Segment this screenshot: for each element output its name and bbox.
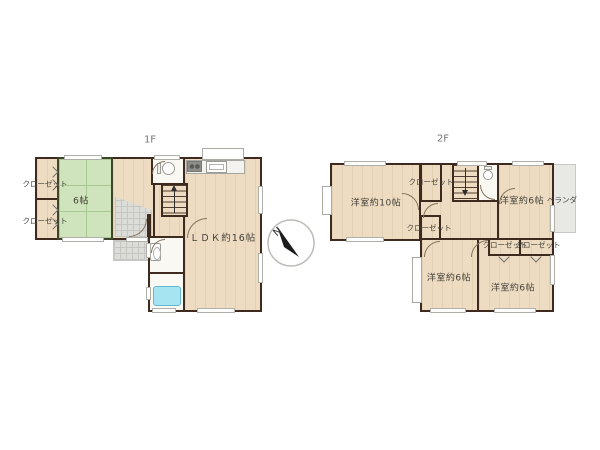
compass-icon: N: [264, 216, 318, 270]
stairs-up-arrowhead: [171, 185, 177, 191]
stairs-down-arrowhead: [462, 190, 468, 196]
window: [344, 161, 386, 166]
closet-label: クローゼット: [23, 179, 68, 190]
bedroom-6-sw-label: 洋室約6帖: [427, 271, 471, 284]
window: [512, 161, 544, 166]
window: [197, 308, 235, 313]
window: [154, 155, 180, 160]
bedroom-10-label: 洋室約10帖: [351, 196, 401, 209]
window: [146, 287, 151, 300]
window: [430, 308, 466, 313]
toilet-icon: [483, 166, 493, 180]
window: [550, 205, 555, 232]
window: [550, 255, 555, 285]
bay-window: [412, 257, 422, 303]
floor-2-label: 2F: [437, 134, 449, 145]
bedroom-6-se-label: 洋室約6帖: [491, 281, 535, 294]
tatami-room-label: 6帖: [73, 194, 89, 207]
bathtub-icon: [153, 286, 181, 306]
floorplan-image: 1F: [0, 0, 600, 450]
window: [494, 308, 536, 313]
window: [152, 308, 176, 313]
closet-label: クローゼット: [516, 240, 561, 251]
entrance-porch: [113, 240, 149, 261]
veranda-label: ベランダ: [547, 195, 577, 206]
bay-window: [322, 186, 332, 215]
window: [64, 155, 102, 160]
stove-icon: [187, 161, 202, 172]
bedroom-6-ne-label: 洋室約6帖: [500, 194, 544, 207]
closet-label: クローゼット: [407, 223, 452, 234]
kitchen-bay-window: [202, 148, 244, 160]
closet-label: クローゼット: [409, 177, 454, 188]
window: [258, 253, 263, 283]
closet-label: クローゼット: [23, 216, 68, 227]
stairs-down-arrow: [465, 168, 466, 190]
window: [62, 237, 104, 242]
entrance-door-opening: [126, 237, 148, 242]
window: [457, 161, 487, 166]
window: [346, 237, 384, 242]
ldk-room-label: ＬＤＫ約16帖: [190, 230, 257, 244]
window: [258, 186, 263, 214]
floor-1-label: 1F: [144, 135, 156, 146]
kitchen-sink-icon: [206, 161, 227, 173]
window: [146, 243, 151, 258]
stairs-up-arrow: [174, 189, 175, 213]
wall-segment: [147, 214, 151, 238]
